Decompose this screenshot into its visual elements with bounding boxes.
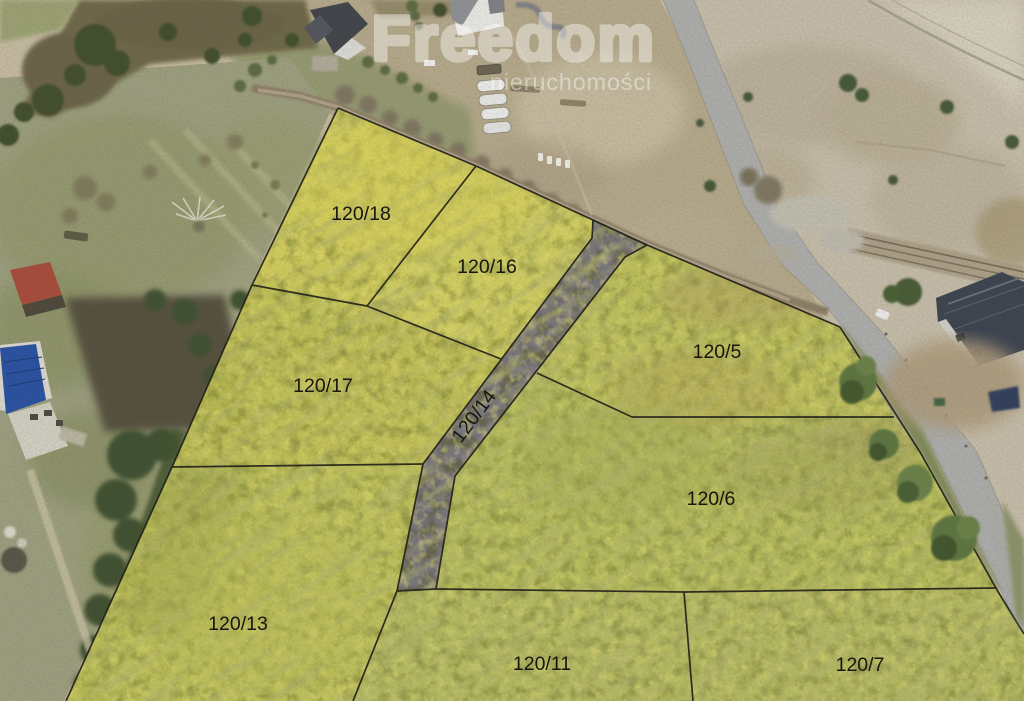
svg-text:nieruchomości: nieruchomości (490, 69, 652, 95)
svg-text:Freedom: Freedom (372, 4, 656, 74)
